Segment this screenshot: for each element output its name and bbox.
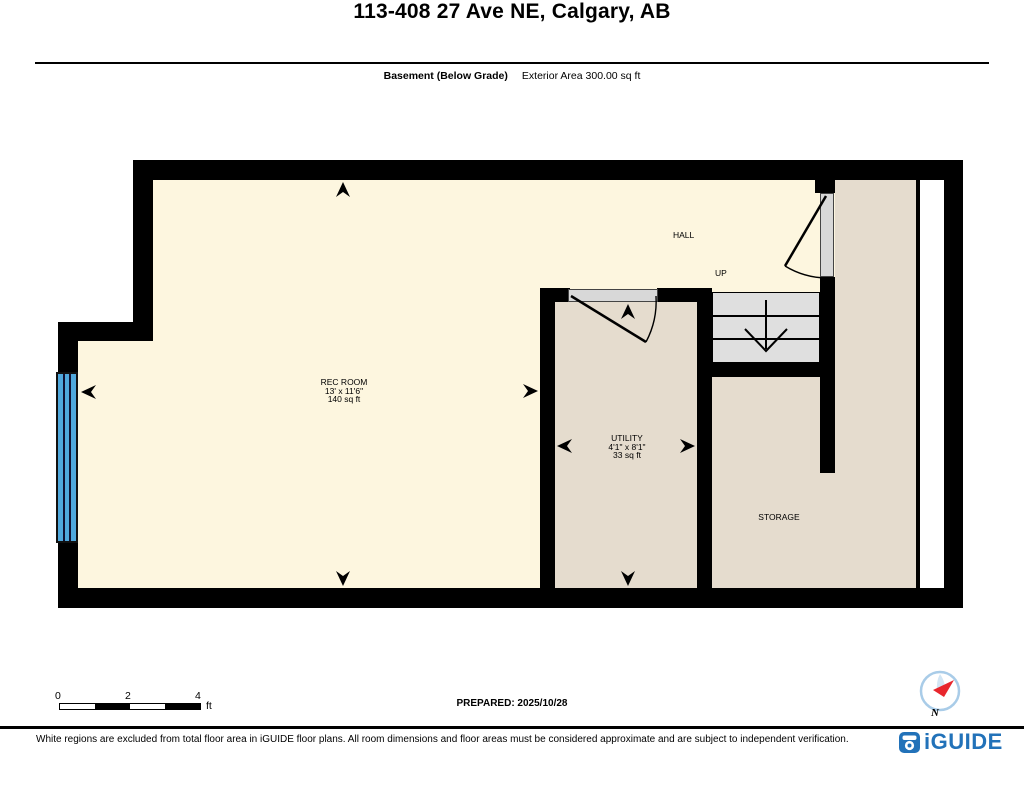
wall-below-stairs bbox=[697, 362, 835, 377]
staircase bbox=[712, 292, 820, 363]
compass-north-label: N bbox=[931, 707, 939, 719]
floor-label: Basement (Below Grade) bbox=[384, 70, 508, 82]
hall-label: HALL bbox=[673, 230, 694, 240]
wall-hall-door-bottom bbox=[820, 277, 835, 377]
utility-door-opening bbox=[568, 289, 658, 302]
rec-room-floor-extension bbox=[78, 341, 153, 588]
rec-room-label: REC ROOM 13' x 11'6" 140 sq ft bbox=[284, 378, 404, 404]
room-name: STORAGE bbox=[719, 513, 839, 522]
wall-bottom bbox=[58, 588, 963, 608]
floorplan-page: 113-408 27 Ave NE, Calgary, AB Basement … bbox=[0, 0, 1024, 791]
window-pane-line bbox=[69, 374, 71, 541]
hall-door-opening bbox=[820, 193, 834, 277]
storage-floor bbox=[712, 377, 916, 588]
compass: N bbox=[917, 670, 965, 720]
wall-right bbox=[944, 160, 963, 608]
stair-tread bbox=[713, 315, 819, 317]
wall-left-upper bbox=[133, 160, 153, 341]
up-label: UP bbox=[715, 268, 727, 278]
window bbox=[56, 372, 78, 543]
header-divider bbox=[35, 62, 989, 64]
wall-storage-stub bbox=[820, 377, 835, 473]
storage-strip-floor bbox=[835, 180, 916, 377]
room-area: 140 sq ft bbox=[284, 395, 404, 404]
wall-utility-top-right bbox=[657, 288, 712, 302]
wall-hall-door-top-stub bbox=[815, 180, 835, 193]
iguide-camera-icon bbox=[898, 731, 921, 754]
wall-top bbox=[133, 160, 963, 180]
utility-label: UTILITY 4'1" x 8'1" 33 sq ft bbox=[567, 434, 687, 460]
page-title: 113-408 27 Ave NE, Calgary, AB bbox=[0, 0, 1024, 24]
wall-utility-right bbox=[697, 288, 712, 588]
floor-subtitle: Basement (Below Grade)Exterior Area 300.… bbox=[0, 70, 1024, 82]
iguide-logo: iGUIDE bbox=[898, 729, 1003, 755]
storage-label: STORAGE bbox=[719, 513, 839, 522]
disclaimer-text: White regions are excluded from total fl… bbox=[36, 734, 876, 745]
stair-tread bbox=[713, 338, 819, 340]
window-pane-line bbox=[63, 374, 65, 541]
prepared-date: PREPARED: 2025/10/28 bbox=[0, 698, 1024, 709]
iguide-logo-text: iGUIDE bbox=[924, 729, 1003, 755]
excluded-white-region bbox=[916, 180, 944, 588]
wall-utility-top-left-stub bbox=[540, 288, 570, 302]
wall-utility-left bbox=[540, 288, 555, 588]
compass-icon bbox=[917, 670, 965, 720]
footer-divider bbox=[0, 726, 1024, 729]
room-area: 33 sq ft bbox=[567, 451, 687, 460]
exterior-area-label: Exterior Area 300.00 sq ft bbox=[522, 70, 640, 82]
